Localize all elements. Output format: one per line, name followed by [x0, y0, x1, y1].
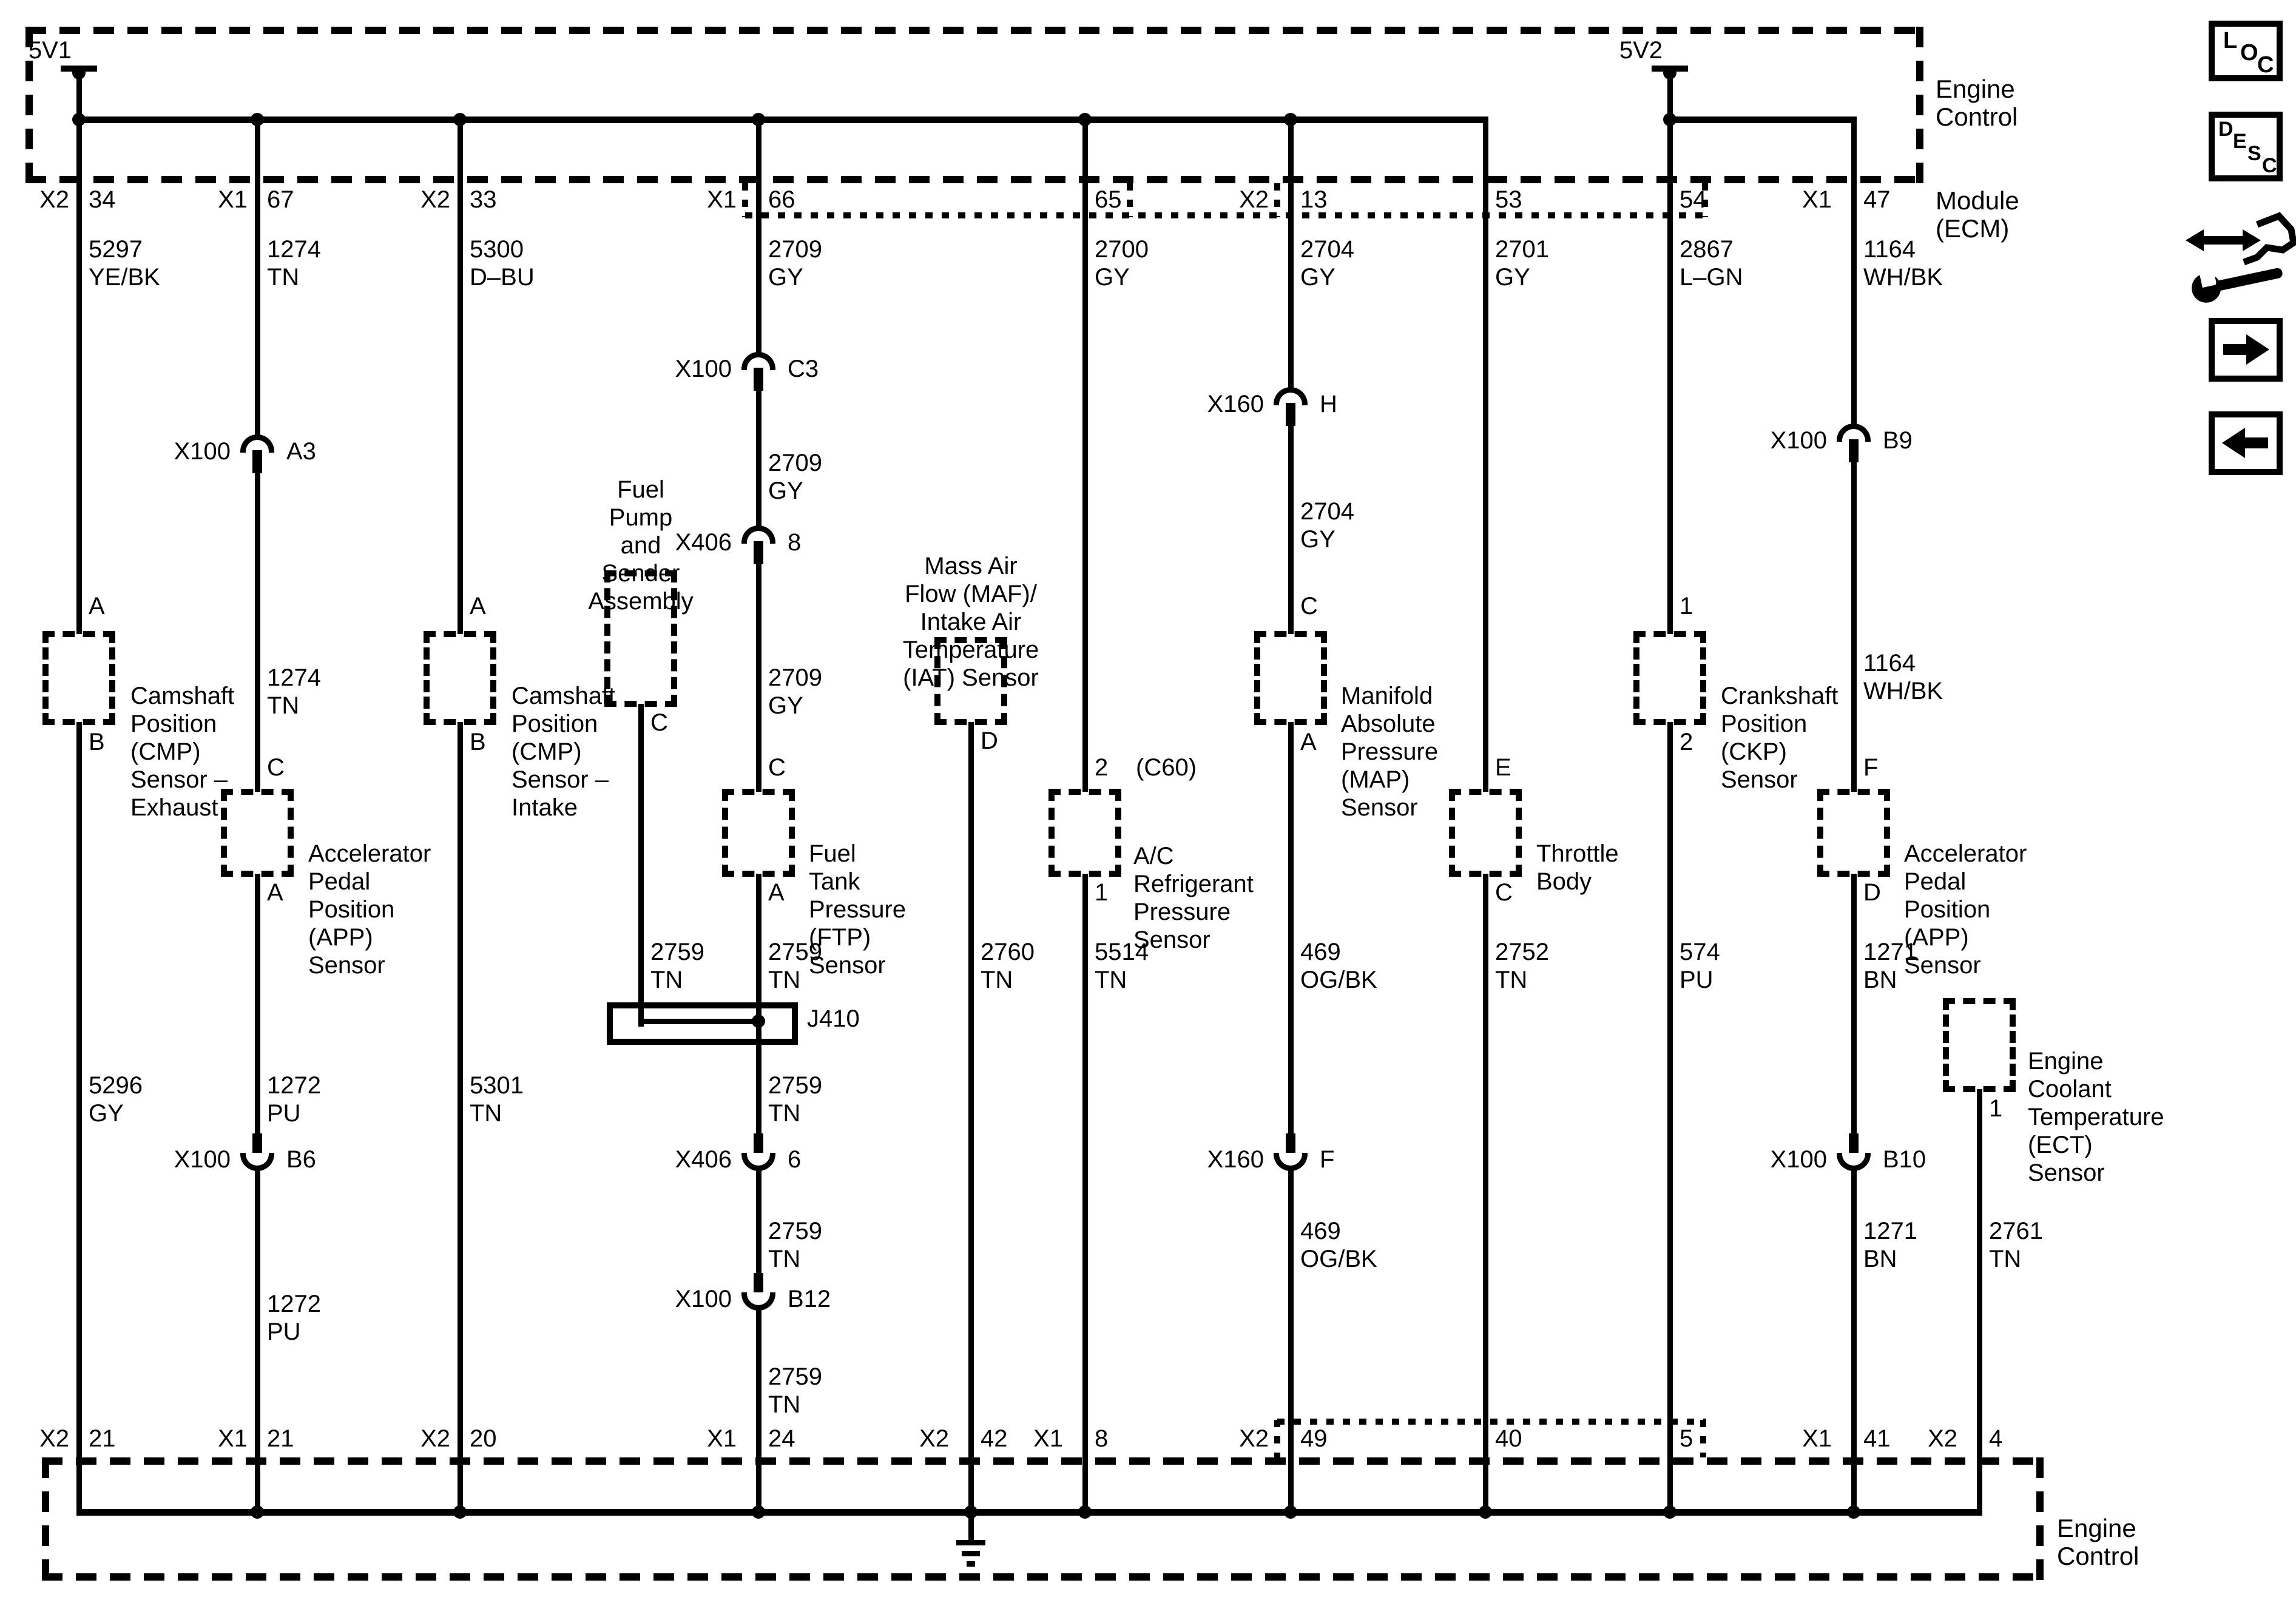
- ecm-top-box-edge: [1916, 27, 1923, 183]
- right-arrow-icon: [2215, 324, 2277, 376]
- bus-junction: [72, 113, 86, 126]
- bus-junction: [1663, 113, 1676, 126]
- wire-label: 2709GY: [768, 449, 822, 505]
- sensor-label-throttle-body: ThrottleBody: [1536, 784, 1619, 951]
- ground-icon: [967, 1561, 975, 1567]
- connector-terminal: H: [1320, 390, 1337, 418]
- sensor-box-ac-pressure: [1048, 789, 1121, 877]
- pin-number: 5: [1680, 1425, 1693, 1453]
- connector-group-boundary: [1127, 183, 1133, 217]
- sensor-pin: A: [768, 879, 785, 906]
- wire-label: 5296GY: [89, 1072, 143, 1127]
- wrench-icon: [2184, 204, 2296, 307]
- ecm-bottom-box-edge: [42, 1573, 2044, 1581]
- inline-connector-icon: [252, 450, 262, 473]
- power-tap-5v2-dot: [1663, 66, 1676, 79]
- wire-label: 2759TN: [768, 1363, 822, 1419]
- sensor-label-fuel-pump: FuelPumpandSenderAssembly: [550, 420, 732, 671]
- ecm-top-label: EngineControl Module(ECM): [1936, 19, 2019, 299]
- pin-number: 40: [1495, 1425, 1522, 1453]
- inline-connector-icon: [1274, 1153, 1308, 1171]
- wire-label: 469OG/BK: [1300, 938, 1377, 994]
- desc-letter: C: [2262, 154, 2277, 178]
- connector-group-boundary: [1274, 1420, 1280, 1457]
- pin-number: 49: [1300, 1425, 1328, 1453]
- bus-junction: [1078, 113, 1092, 126]
- bus-junction: [964, 1505, 977, 1519]
- connector-terminal: 6: [788, 1146, 801, 1173]
- sensor-box-cmp-intake: [424, 631, 496, 725]
- bus-junction: [752, 113, 765, 126]
- connector-terminal: B6: [286, 1146, 316, 1173]
- desc-letter: E: [2233, 130, 2247, 154]
- wire-label: 2704GY: [1300, 235, 1354, 291]
- connector-terminal: B12: [788, 1285, 831, 1313]
- power-tap-5v2-label: 5V2: [1591, 36, 1663, 64]
- sensor-box-cmp-exhaust: [42, 631, 115, 725]
- sensor-pin: C: [650, 709, 668, 737]
- pin-connector: X1: [991, 1425, 1063, 1453]
- wire: [1667, 68, 1673, 634]
- connector-terminal: B10: [1883, 1146, 1926, 1173]
- sensor-label-map: ManifoldAbsolutePressure(MAP)Sensor: [1341, 626, 1438, 877]
- sensor-pin: 2: [1680, 728, 1693, 756]
- ecm-top-box-edge: [25, 27, 1923, 34]
- wire-label: 2759TN: [768, 1217, 822, 1273]
- wire-label: 5301TN: [470, 1072, 524, 1127]
- loc-letter: O: [2240, 40, 2258, 66]
- loc-letter: L: [2223, 28, 2237, 54]
- ecm-bottom-box-edge: [42, 1457, 2044, 1465]
- wire-label: 5300D–BU: [470, 235, 535, 291]
- bus-junction: [752, 1505, 765, 1519]
- connector-group-boundary: [1277, 1419, 1706, 1425]
- wire: [1851, 874, 1857, 1515]
- pin-number: 65: [1095, 186, 1122, 214]
- wire: [1082, 874, 1088, 1515]
- sensor-label-app-right: AcceleratorPedalPosition(APP)Sensor: [1904, 784, 2027, 1035]
- connector-name: X100: [136, 437, 231, 465]
- loc-letter: C: [2257, 52, 2274, 78]
- pin-number: 13: [1300, 186, 1328, 214]
- wire: [968, 722, 974, 1515]
- inline-connector-icon: [741, 1153, 775, 1171]
- desc-button[interactable]: D E S C: [2209, 112, 2283, 181]
- pin-connector: X1: [1760, 1425, 1832, 1453]
- ecm-bottom-box-edge: [2036, 1457, 2044, 1581]
- sensor-box-map: [1254, 631, 1327, 725]
- connector-name: X100: [637, 355, 732, 383]
- ecm-top-box-edge: [25, 176, 1923, 183]
- sensor-label-cmp-exhaust: CamshaftPosition(CMP)Sensor –Exhaust: [130, 626, 234, 877]
- splice-j410-box: [607, 1002, 798, 1045]
- wire: [458, 116, 463, 634]
- connector-name: X160: [1169, 390, 1264, 418]
- connector-group-boundary: [742, 183, 748, 217]
- bus-ground: [76, 1509, 1982, 1516]
- sensor-pin-note: (C60): [1136, 754, 1197, 781]
- sensor-label-maf-iat: Mass AirFlow (MAF)/Intake AirTemperature…: [862, 496, 1080, 748]
- sensor-pin: A: [89, 592, 105, 620]
- pin-connector: X2: [1886, 1425, 1957, 1453]
- pin-number: 67: [267, 186, 294, 214]
- sensor-label-ac-pressure: A/CRefrigerantPressureSensor: [1133, 786, 1254, 1010]
- pin-number: 21: [267, 1425, 294, 1453]
- desc-letter: D: [2218, 118, 2234, 141]
- connector-terminal: F: [1320, 1146, 1334, 1173]
- wire-label: 2867L–GN: [1680, 235, 1743, 291]
- wire-label: 1164WH/BK: [1863, 649, 1943, 705]
- pin-connector: X2: [0, 186, 69, 214]
- wire-label: 2759TN: [768, 1072, 822, 1127]
- sensor-pin: E: [1495, 754, 1511, 781]
- sensor-pin: 1: [1095, 879, 1108, 906]
- sensor-label-ckp: CrankshaftPosition(CKP)Sensor: [1721, 626, 1838, 849]
- wire: [1288, 116, 1294, 634]
- wire-label: 5297YE/BK: [89, 235, 160, 291]
- bus-junction: [1663, 1505, 1676, 1519]
- sensor-pin: B: [89, 728, 105, 756]
- sensor-pin: F: [1863, 754, 1878, 781]
- sensor-box-ckp: [1633, 631, 1706, 725]
- bus-junction: [1284, 113, 1297, 126]
- bus-junction: [251, 1505, 264, 1519]
- pin-connector: X2: [379, 1425, 450, 1453]
- wire-label: 1272PU: [267, 1290, 321, 1346]
- sensor-pin: B: [470, 728, 486, 756]
- wire: [76, 116, 82, 634]
- pin-number: 4: [1989, 1425, 2002, 1453]
- connector-name: X406: [637, 1146, 732, 1173]
- wire: [255, 874, 260, 1515]
- connector-name: X100: [1732, 427, 1827, 454]
- pin-connector: X1: [665, 1425, 737, 1453]
- connector-terminal: B9: [1883, 427, 1913, 454]
- bus-5v1: [76, 116, 1488, 123]
- power-tap-5v1-label: 5V1: [0, 36, 72, 64]
- pin-connector: X1: [176, 1425, 248, 1453]
- connector-name: X100: [136, 1146, 231, 1173]
- wire: [1977, 1089, 1982, 1515]
- pin-number: 20: [470, 1425, 497, 1453]
- inline-connector-icon: [754, 541, 763, 564]
- bus-junction: [1284, 1505, 1297, 1519]
- pin-number: 24: [768, 1425, 795, 1453]
- inline-connector-icon: [1286, 403, 1295, 426]
- sensor-box-throttle-body: [1449, 789, 1522, 877]
- connector-group-boundary: [1700, 1420, 1706, 1457]
- connector-name: X160: [1169, 1146, 1264, 1173]
- connector-name: X100: [637, 1285, 732, 1313]
- wire-label: 1164WH/BK: [1863, 235, 1943, 291]
- pin-number: 34: [89, 186, 116, 214]
- wire: [638, 704, 644, 1027]
- wire-label: 2701GY: [1495, 235, 1549, 291]
- sensor-pin: 1: [1680, 592, 1693, 620]
- bus-junction: [1847, 1505, 1860, 1519]
- pin-connector: X1: [176, 186, 248, 214]
- loc-button[interactable]: L O C: [2209, 21, 2283, 81]
- wire-label: 1274TN: [267, 664, 321, 720]
- wire: [1288, 722, 1294, 1515]
- sensor-pin: A: [470, 592, 486, 620]
- pin-connector: X1: [665, 186, 737, 214]
- pin-number: 54: [1680, 186, 1707, 214]
- sensor-pin: C: [768, 754, 786, 781]
- connector-terminal: 8: [788, 528, 801, 556]
- inline-connector-icon: [741, 1292, 775, 1311]
- pin-connector: X2: [1197, 186, 1269, 214]
- sensor-pin: 2: [1095, 754, 1108, 781]
- connector-terminal: C3: [788, 355, 819, 383]
- pin-connector: X2: [0, 1425, 69, 1453]
- wire-label: 2759TN: [650, 938, 704, 994]
- desc-letter: S: [2247, 142, 2261, 166]
- pin-connector: X2: [1197, 1425, 1269, 1453]
- connector-terminal: A3: [286, 437, 316, 465]
- splice-junction: [752, 1014, 765, 1028]
- sensor-pin: A: [1300, 728, 1317, 756]
- sensor-pin: 1: [1989, 1095, 2002, 1122]
- wiring-diagram: EngineControl Module(ECM) 5V1 5V2 X2 34 …: [0, 0, 2296, 1617]
- wire-label: 469OG/BK: [1300, 1217, 1377, 1273]
- sensor-box-ftp: [722, 789, 795, 877]
- wire: [756, 874, 761, 1515]
- ecm-bottom-label: EngineControl Module(ECM): [2057, 1459, 2141, 1617]
- sensor-pin: C: [1495, 879, 1513, 906]
- ground-icon: [956, 1540, 985, 1545]
- wire-label: 2709GY: [768, 235, 822, 291]
- splice-j410-label: J410: [807, 1005, 860, 1033]
- inline-connector-icon: [754, 368, 763, 391]
- connector-name: X100: [1732, 1146, 1827, 1173]
- pin-connector: X1: [1760, 186, 1832, 214]
- sensor-pin: A: [267, 879, 283, 906]
- wire-label: 1272PU: [267, 1072, 321, 1127]
- pin-number: 66: [768, 186, 795, 214]
- bus-junction: [1479, 1505, 1492, 1519]
- wire-label: 1271BN: [1863, 1217, 1917, 1273]
- wire-label: 2760TN: [981, 938, 1035, 994]
- wire: [76, 722, 82, 1515]
- bus-junction: [251, 113, 264, 126]
- bus-junction: [1078, 1505, 1092, 1519]
- bus-junction: [453, 113, 467, 126]
- wire-label: 2709GY: [768, 664, 822, 720]
- inline-connector-icon: [1849, 439, 1859, 462]
- wire-label: 2700GY: [1095, 235, 1149, 291]
- pin-number: 47: [1863, 186, 1891, 214]
- sensor-pin: C: [267, 754, 285, 781]
- pin-number: 21: [89, 1425, 116, 1453]
- wire-label: 2704GY: [1300, 498, 1354, 553]
- sensor-pin: C: [1300, 592, 1318, 620]
- sensor-label-ect: EngineCoolantTemperature(ECT)Sensor: [2028, 991, 2164, 1243]
- ecm-bottom-box-edge: [42, 1457, 49, 1581]
- left-arrow-icon: [2215, 417, 2277, 469]
- pin-connector: X2: [379, 186, 450, 214]
- power-tap-5v1-dot: [72, 66, 86, 79]
- wire: [458, 722, 463, 1515]
- pin-connector: X2: [877, 1425, 949, 1453]
- bus-5v2: [1667, 116, 1857, 123]
- pin-number: 53: [1495, 186, 1522, 214]
- connector-group-boundary: [1274, 183, 1280, 217]
- inline-connector-icon: [1837, 1153, 1871, 1171]
- sensor-label-ftp: FuelTankPressure(FTP)Sensor: [809, 784, 906, 1035]
- inline-connector-icon: [240, 1153, 274, 1171]
- wire-label: 574PU: [1680, 938, 1720, 994]
- sensor-pin: D: [1863, 879, 1881, 906]
- pin-number: 8: [1095, 1425, 1108, 1453]
- wire: [1667, 722, 1673, 1515]
- wire-label: 1274TN: [267, 235, 321, 291]
- sensor-label-app-left: AcceleratorPedalPosition(APP)Sensor: [308, 784, 431, 1035]
- ground-icon: [962, 1551, 980, 1556]
- sensor-pin: D: [981, 727, 998, 755]
- pin-number: 33: [470, 186, 497, 214]
- bus-junction: [453, 1505, 467, 1519]
